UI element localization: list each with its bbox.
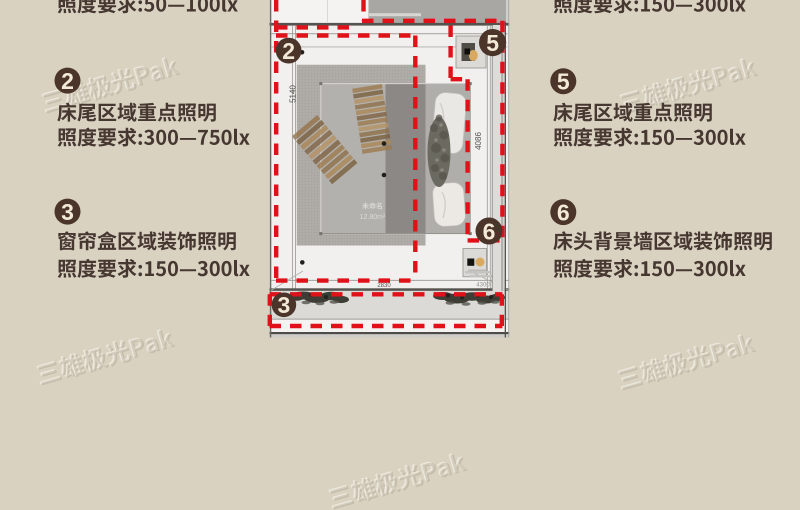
svg-text:4086: 4086	[474, 132, 483, 150]
svg-text:2: 2	[61, 68, 74, 94]
svg-text:6: 6	[557, 199, 570, 225]
svg-text:5140: 5140	[288, 85, 297, 103]
svg-text:2830: 2830	[377, 283, 391, 289]
svg-text:6: 6	[483, 218, 496, 244]
svg-text:3: 3	[278, 292, 291, 318]
svg-text:2: 2	[282, 38, 295, 64]
svg-text:12.80m²: 12.80m²	[360, 214, 386, 221]
svg-text:5: 5	[557, 68, 570, 94]
svg-text:4300: 4300	[476, 283, 490, 289]
svg-text:5: 5	[486, 30, 499, 56]
svg-text:3: 3	[61, 199, 74, 225]
